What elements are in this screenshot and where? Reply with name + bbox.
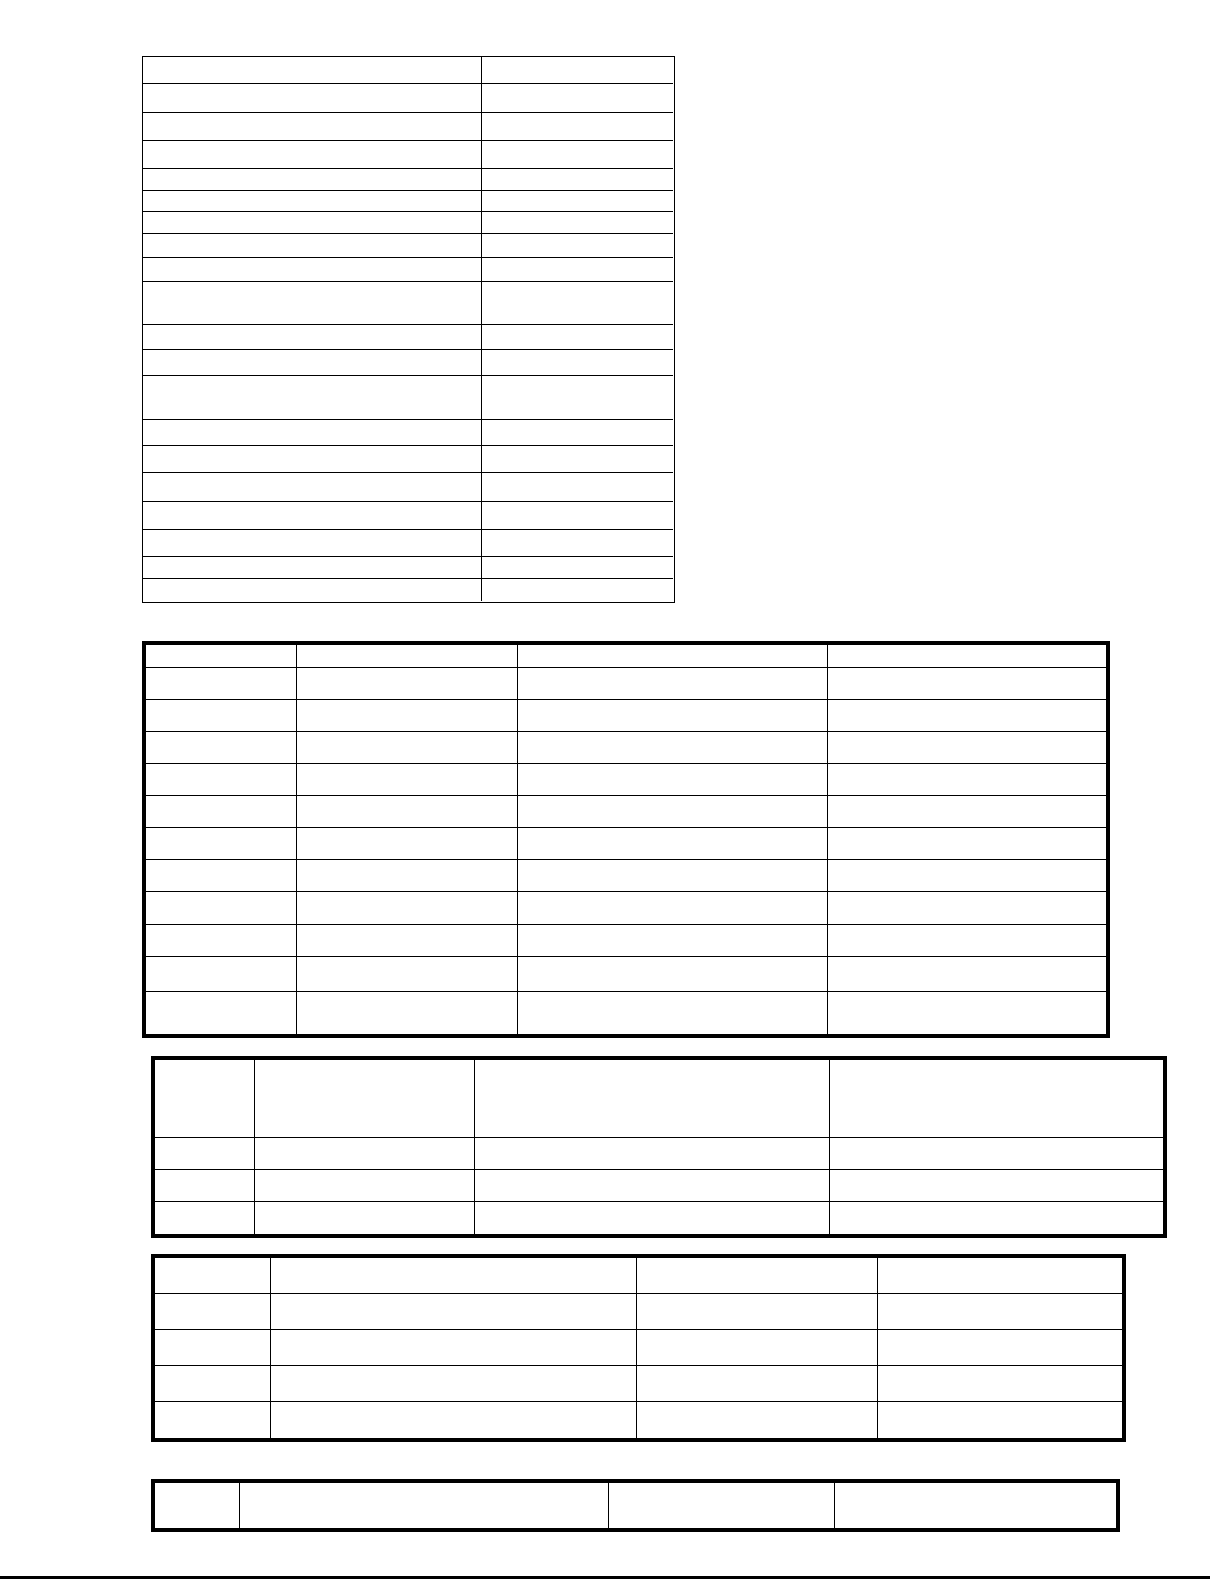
table-4-cell [878, 1402, 1122, 1438]
table-2-cell [297, 957, 518, 992]
table-4-cell [271, 1366, 637, 1402]
table-2-cell [297, 700, 518, 732]
table-2-cell [518, 992, 828, 1034]
table-1-cell [482, 141, 673, 169]
table-1-cell [143, 557, 482, 579]
table-2-cell [828, 700, 1106, 732]
table-2-cell [828, 645, 1106, 668]
table-1-cell [143, 473, 482, 502]
table-2-cell [518, 957, 828, 992]
table-5 [151, 1479, 1120, 1532]
table-1-cell [482, 446, 673, 473]
table-3 [151, 1056, 1167, 1238]
table-2-cell [146, 796, 297, 828]
table-1-cell [482, 169, 673, 191]
table-4-cell [271, 1294, 637, 1330]
table-3-cell [475, 1202, 830, 1234]
table-4-cell [271, 1330, 637, 1366]
table-1-cell [482, 57, 673, 84]
table-1-cell [143, 530, 482, 557]
table-4-cell [155, 1258, 271, 1294]
table-3-cell [830, 1138, 1163, 1170]
table-2-cell [297, 828, 518, 860]
page-footer-rule [0, 1576, 1210, 1579]
table-1-cell [143, 420, 482, 446]
table-5-cell [155, 1483, 240, 1528]
table-1-cell [482, 212, 673, 234]
table-1-cell [143, 84, 482, 113]
table-2-cell [828, 925, 1106, 957]
table-2-cell [828, 732, 1106, 764]
table-4-cell [878, 1294, 1122, 1330]
table-2-cell [828, 828, 1106, 860]
table-3-cell [255, 1060, 475, 1138]
table-2-cell [146, 732, 297, 764]
table-2-cell [828, 860, 1106, 892]
table-1-cell [143, 579, 482, 601]
table-1-cell [143, 282, 482, 325]
table-2-cell [146, 860, 297, 892]
table-1-cell [482, 191, 673, 212]
table-2 [142, 641, 1110, 1038]
table-2-cell [146, 700, 297, 732]
table-2-cell [146, 668, 297, 700]
table-3-cell [155, 1202, 255, 1234]
table-4-cell [155, 1402, 271, 1438]
table-2-cell [297, 925, 518, 957]
table-2-cell [297, 732, 518, 764]
table-2-cell [518, 796, 828, 828]
table-1-cell [482, 502, 673, 530]
table-2-cell [828, 796, 1106, 828]
table-4-cell [155, 1366, 271, 1402]
table-2-cell [297, 668, 518, 700]
table-2-cell [518, 892, 828, 925]
table-1-cell [482, 557, 673, 579]
table-1-cell [482, 282, 673, 325]
table-4-cell [878, 1258, 1122, 1294]
table-1-cell [143, 169, 482, 191]
table-2-cell [828, 764, 1106, 796]
table-4 [151, 1254, 1126, 1442]
table-4-cell [155, 1294, 271, 1330]
table-3-cell [255, 1202, 475, 1234]
table-4-cell [878, 1330, 1122, 1366]
table-1-cell [482, 530, 673, 557]
table-2-cell [146, 764, 297, 796]
table-2-cell [518, 764, 828, 796]
table-3-cell [255, 1170, 475, 1202]
table-2-cell [828, 892, 1106, 925]
table-4-cell [271, 1258, 637, 1294]
table-2-cell [297, 764, 518, 796]
table-2-cell [828, 992, 1106, 1034]
table-5-cell [835, 1483, 1116, 1528]
table-1-cell [143, 234, 482, 258]
table-3-cell [475, 1138, 830, 1170]
table-4-cell [155, 1330, 271, 1366]
table-4-cell [637, 1330, 878, 1366]
table-2-cell [146, 925, 297, 957]
table-2-cell [297, 892, 518, 925]
table-3-cell [830, 1170, 1163, 1202]
table-4-cell [271, 1402, 637, 1438]
table-1-cell [482, 258, 673, 282]
table-1-cell [143, 350, 482, 376]
table-4-cell [637, 1294, 878, 1330]
table-1-cell [482, 376, 673, 420]
table-1-cell [143, 141, 482, 169]
table-2-cell [518, 700, 828, 732]
table-1-cell [143, 325, 482, 350]
table-2-cell [297, 796, 518, 828]
table-3-cell [830, 1060, 1163, 1138]
table-1-cell [482, 473, 673, 502]
table-3-cell [475, 1060, 830, 1138]
table-1-cell [143, 191, 482, 212]
table-1-cell [143, 57, 482, 84]
table-1-cell [482, 84, 673, 113]
table-2-cell [518, 828, 828, 860]
table-1-cell [143, 446, 482, 473]
table-1-cell [143, 212, 482, 234]
table-1 [142, 56, 675, 603]
table-2-cell [297, 860, 518, 892]
table-3-cell [830, 1202, 1163, 1234]
table-1-cell [143, 502, 482, 530]
table-4-cell [637, 1258, 878, 1294]
table-2-cell [297, 992, 518, 1034]
table-3-cell [155, 1138, 255, 1170]
table-2-cell [518, 645, 828, 668]
table-2-cell [828, 668, 1106, 700]
table-1-cell [482, 420, 673, 446]
table-1-cell [143, 258, 482, 282]
table-2-cell [146, 892, 297, 925]
table-2-cell [146, 645, 297, 668]
table-1-cell [482, 234, 673, 258]
table-4-cell [637, 1402, 878, 1438]
table-5-cell [240, 1483, 609, 1528]
table-4-cell [878, 1366, 1122, 1402]
table-3-cell [475, 1170, 830, 1202]
table-1-cell [482, 113, 673, 141]
table-3-cell [255, 1138, 475, 1170]
table-2-cell [518, 668, 828, 700]
table-1-cell [143, 376, 482, 420]
table-5-cell [609, 1483, 835, 1528]
table-2-cell [518, 925, 828, 957]
table-1-cell [482, 579, 673, 601]
table-2-cell [828, 957, 1106, 992]
table-2-cell [297, 645, 518, 668]
table-2-cell [518, 860, 828, 892]
table-1-cell [482, 350, 673, 376]
table-2-cell [146, 957, 297, 992]
table-2-cell [146, 992, 297, 1034]
table-2-cell [146, 828, 297, 860]
table-3-cell [155, 1170, 255, 1202]
table-2-cell [518, 732, 828, 764]
table-3-cell [155, 1060, 255, 1138]
table-4-cell [637, 1366, 878, 1402]
document-page [0, 0, 1225, 1585]
table-1-cell [143, 113, 482, 141]
table-1-cell [482, 325, 673, 350]
